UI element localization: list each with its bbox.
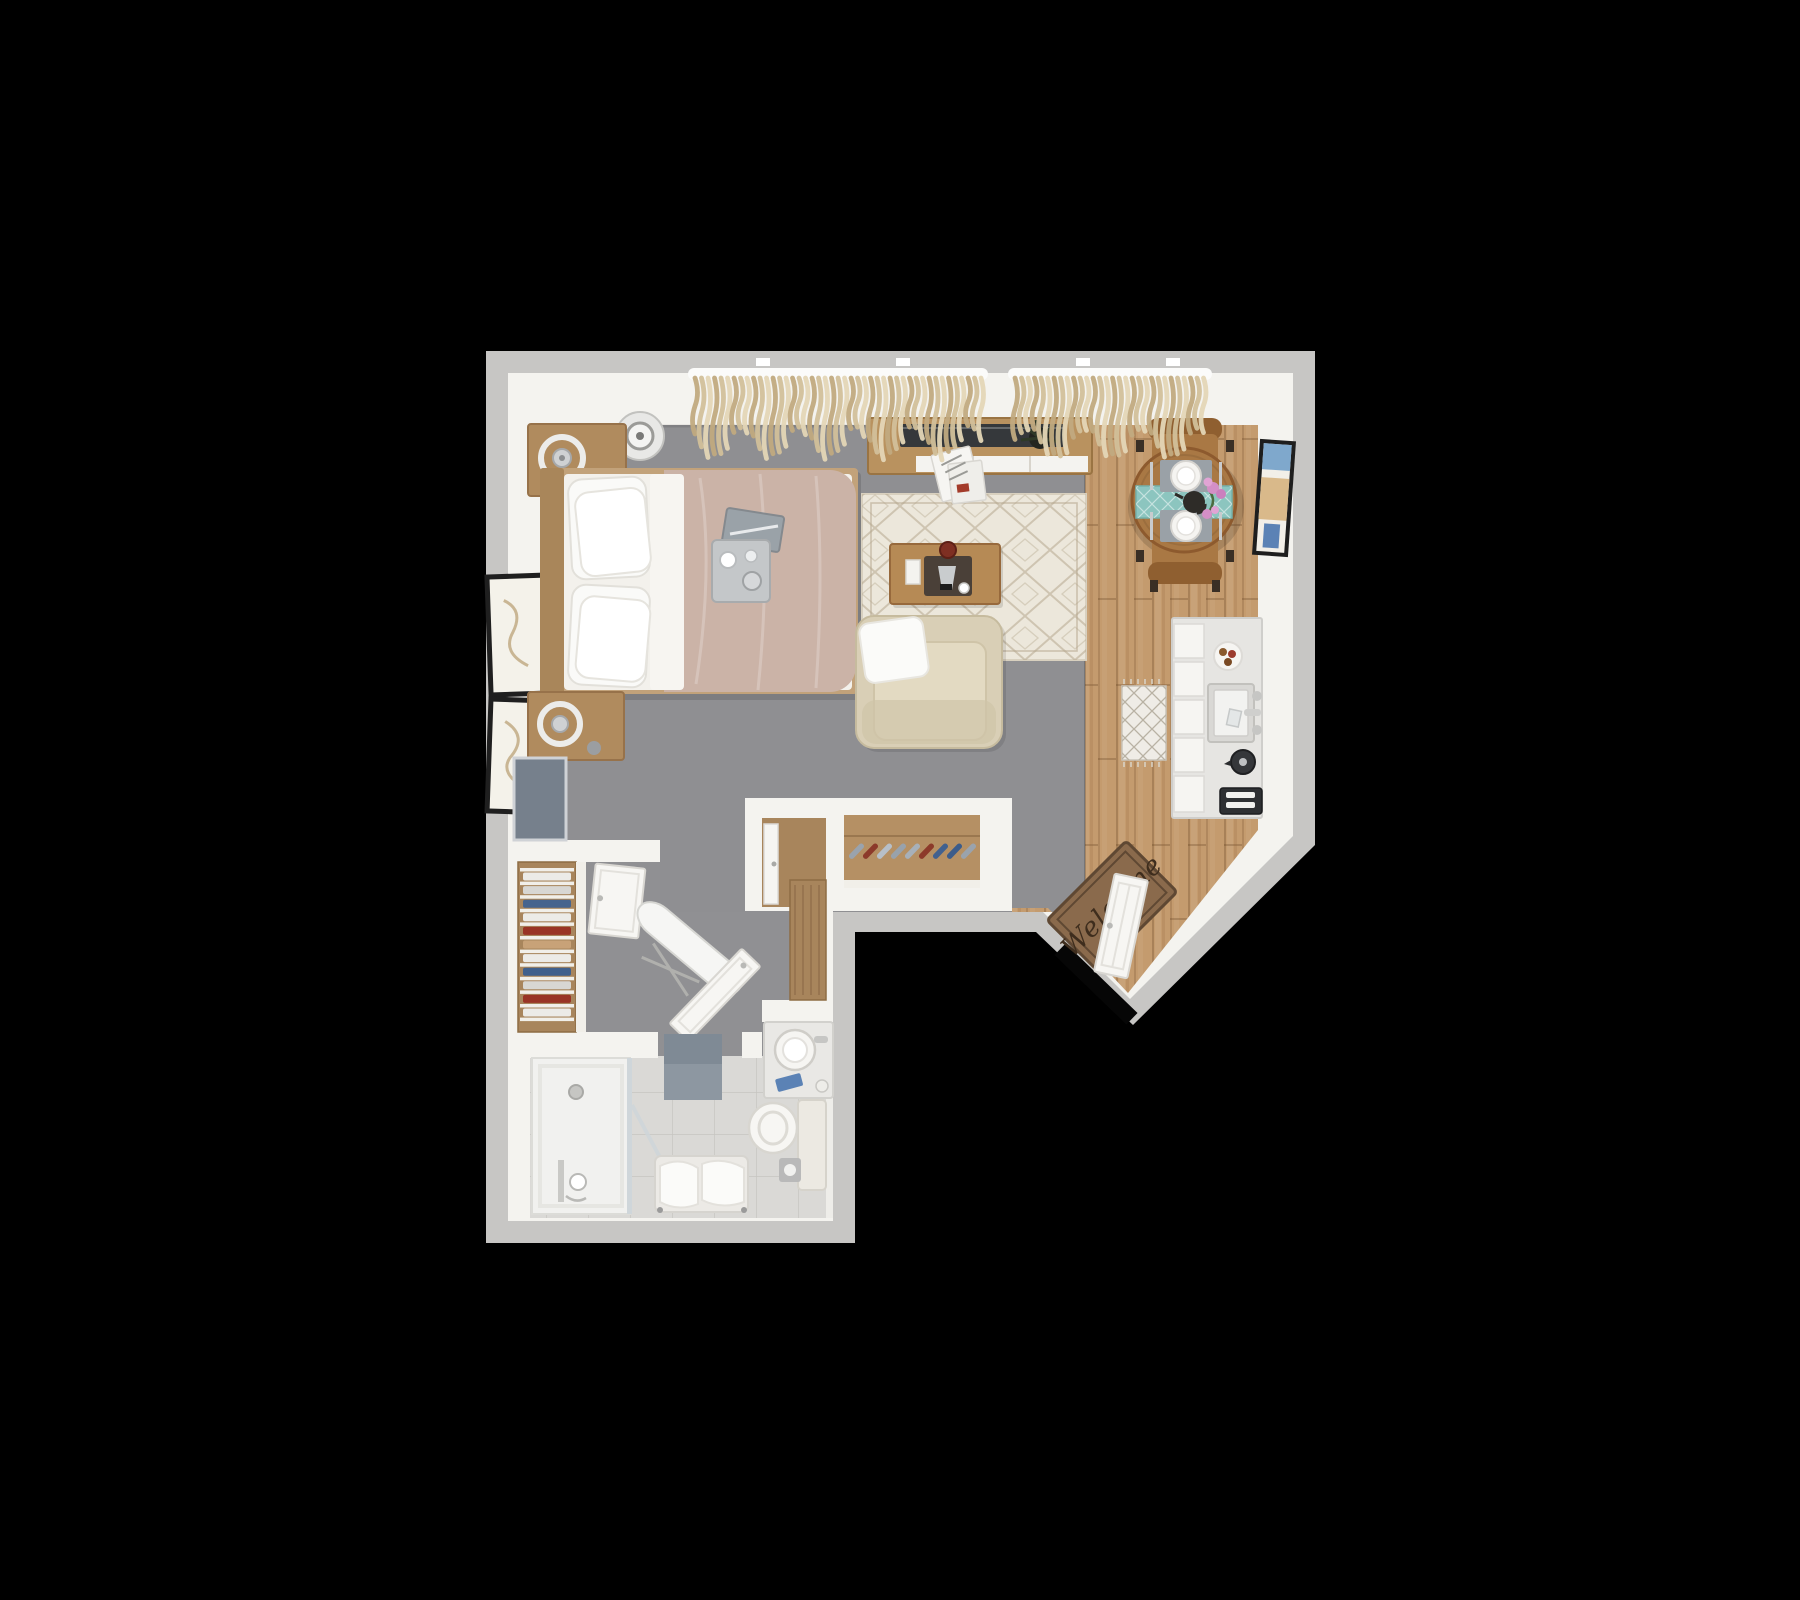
floor-plan: Welcome [0,0,1800,1600]
shelf [520,990,574,994]
shelf [520,950,574,954]
cup [816,1080,828,1092]
shelf [520,895,574,899]
chair-back [862,700,996,744]
shower-glass [627,1058,632,1214]
shelf [520,868,574,872]
faucet-spout [1244,709,1261,716]
shoe-closet [844,815,980,888]
glass-in-sink [1226,709,1241,727]
fork-top [1150,462,1153,490]
shoe-shelf-lip [844,880,980,888]
shelf [520,922,574,926]
shelf [520,1018,574,1022]
shower-drain [569,1085,583,1099]
leaning-mirror-panel [514,758,566,840]
small-cup [959,583,969,593]
curtain-rod-right [1008,368,1212,380]
coffee-cup [720,552,736,568]
ceiling-light-center [636,432,644,440]
bath-mat [664,1034,722,1100]
folded-clothes [523,900,571,908]
folded-clothes [523,995,571,1003]
red-bowl [940,542,956,558]
shelf [520,963,574,967]
folded-clothes [523,968,571,976]
folded-clothes [523,913,571,921]
folded-clothes [523,941,571,949]
fork-bottom [1150,512,1153,540]
bed [540,468,861,700]
bathroom-wall-left [508,1032,658,1058]
knife-bottom [1219,512,1222,540]
folded-clothes [523,873,571,881]
floor-plan-stage: Welcome [0,0,1800,1600]
kitchen-sink [1208,684,1262,742]
breakfast-tray [712,540,770,602]
bathroom-wall-mid [742,1032,762,1058]
towel-2 [702,1161,744,1206]
shelf [520,909,574,913]
closet-frame [576,862,586,1032]
faucet-handle-1 [1252,691,1262,701]
card [906,560,920,584]
faucet-handle-2 [1252,725,1262,735]
shelf [520,882,574,886]
sink-faucet [814,1036,828,1043]
nightstand-bottom [528,692,624,760]
silver-pot [743,572,761,590]
headboard [540,468,564,694]
toilet-tank [798,1100,826,1190]
shelf [520,1004,574,1008]
coffee-table [890,542,1003,608]
throw-pillow [858,616,930,684]
folded-clothes [523,981,571,989]
bathroom-sink [764,1022,833,1098]
folded-clothes [523,1009,571,1017]
towel-bench [655,1156,748,1213]
knife-top [1219,462,1222,490]
closet-top-wall [508,840,660,862]
food-plate [1214,642,1242,670]
closet-door [588,864,645,939]
folded-clothes [523,886,571,894]
counter-drawers [1174,624,1204,812]
shelf [520,977,574,981]
lamp-ball [587,741,601,755]
folded-clothes [523,927,571,935]
sink-nook-wall [762,1000,833,1022]
towel-1 [660,1161,698,1207]
armchair [856,616,1006,752]
closet-shelves [520,868,574,1021]
folded-clothes [523,954,571,962]
toaster [1220,788,1262,814]
sheet-fold [650,474,684,690]
shelf [520,936,574,940]
